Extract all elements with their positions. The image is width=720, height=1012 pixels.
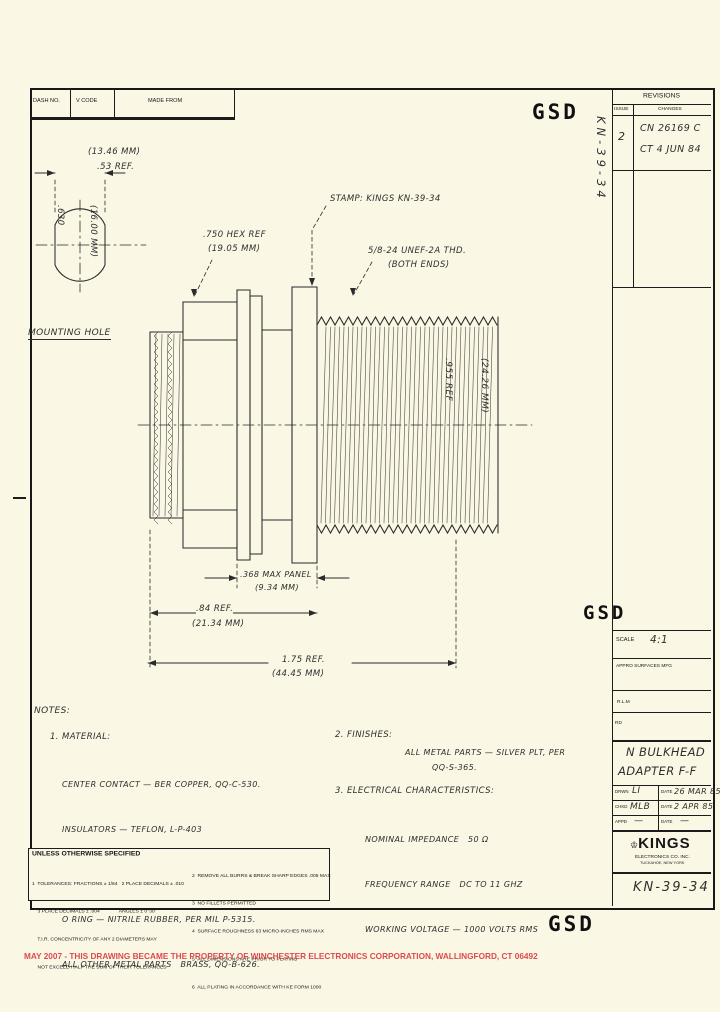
tb-line-top <box>612 630 711 631</box>
checked-date-label: DATE <box>661 804 672 809</box>
drawn-date: 26 MAR 85 <box>674 787 720 796</box>
field-b: RD <box>615 720 622 725</box>
dim-hole-dia: (16.00 MM) .630 <box>32 205 120 257</box>
field-a: R.L.M <box>617 699 630 704</box>
mounting-hole-label: MOUNTING HOLE <box>28 328 111 340</box>
tb-line-9 <box>612 872 711 874</box>
spec-right-column: 2 REMOVE ALL BURRS & BREAK SHARP EDGES .… <box>192 852 331 1010</box>
drawing-sheet-page: DASH NO. V CODE MADE FROM REVISIONS ISSU… <box>0 0 720 1012</box>
tb-line-1 <box>612 658 711 659</box>
drawing-number: KN-39-34 <box>633 880 710 895</box>
dim-hole-width-in: .53 REF. <box>97 162 134 172</box>
note-electrical-heading: 3. ELECTRICAL CHARACTERISTICS: <box>335 786 494 796</box>
dimension-lines <box>148 530 456 668</box>
drawn-label: DRWN <box>615 789 629 794</box>
note-material-heading: 1. MATERIAL: <box>50 732 111 742</box>
note-finishes-line2: QQ-S-365. <box>432 763 477 772</box>
spec-left-column: 1 TOLERANCES: FRACTIONS ± 1/64 2 PLACE D… <box>32 860 184 990</box>
note-electrical-lines: NOMINAL IMPEDANCE 50 Ω FREQUENCY RANGE D… <box>365 802 538 967</box>
notes-heading: NOTES: <box>34 706 70 716</box>
dim-hole-width-mm: (13.46 MM) <box>88 147 140 157</box>
scale-label: SCALE <box>616 636 634 642</box>
checked-date: 2 APR 85 <box>674 802 713 811</box>
drawn-value: LI <box>632 786 640 796</box>
tb-line-6 <box>612 800 711 801</box>
approved-date: — <box>680 816 689 826</box>
spec-title: UNLESS OTHERWISE SPECIFIED <box>32 850 140 857</box>
dim-body-mm: (21.34 MM) <box>192 619 244 629</box>
tb-line-2 <box>612 690 711 691</box>
surfaces-label: APPRO SURFACES MFG <box>616 663 672 668</box>
property-note: MAY 2007 - THIS DRAWING BECAME THE PROPE… <box>24 951 538 961</box>
crown-icon: ♔ <box>630 840 638 850</box>
checked-value: MLB <box>630 802 650 812</box>
tb-line-8 <box>612 830 711 832</box>
tb-line-3 <box>612 712 711 713</box>
drawing-title-line1: N BULKHEAD <box>626 745 705 759</box>
company-logo: ♔KINGS <box>630 835 691 852</box>
callout-hex-in: .750 HEX REF <box>203 230 266 240</box>
checked-label: CHKD <box>615 804 627 809</box>
dim-overall-mm: (44.45 MM) <box>272 669 324 679</box>
scale-value: 4:1 <box>650 634 668 646</box>
note-finishes-line1: ALL METAL PARTS — SILVER PLT, PER <box>405 748 565 757</box>
tb-line-4 <box>612 740 711 742</box>
company-name: KINGS <box>638 835 691 852</box>
company-sub1: ELECTRONICS CO. INC. <box>635 854 690 859</box>
drawing-title-line2: ADAPTER F-F <box>618 764 697 778</box>
dim-thread-length: (24.26 MM) .955 REF <box>418 358 514 413</box>
dim-panel-in: .368 MAX PANEL <box>240 570 312 579</box>
drawn-date-label: DATE <box>661 789 672 794</box>
note-finishes-heading: 2. FINISHES: <box>335 730 392 740</box>
callout-hex-mm: (19.05 MM) <box>208 244 260 254</box>
dim-body-in: .84 REF. <box>196 604 233 614</box>
callout-thread: 5/8-24 UNEF-2A THD. <box>368 246 466 256</box>
dim-panel-mm: (9.34 MM) <box>255 583 299 592</box>
tb-line-7 <box>612 815 711 816</box>
dim-overall-in: 1.75 REF. <box>282 655 325 665</box>
tb-line-5 <box>612 785 711 786</box>
callout-thread-ends: (BOTH ENDS) <box>388 260 450 270</box>
tb-sign-divider <box>658 785 659 830</box>
approved-label: APPD <box>615 819 627 824</box>
callout-stamp: STAMP: KINGS KN-39-34 <box>330 194 441 204</box>
company-sub2: TUCKAHOE, NEW YORK <box>640 861 684 865</box>
approved-date-label: DATE <box>661 819 672 824</box>
approved-value: — <box>634 816 643 826</box>
